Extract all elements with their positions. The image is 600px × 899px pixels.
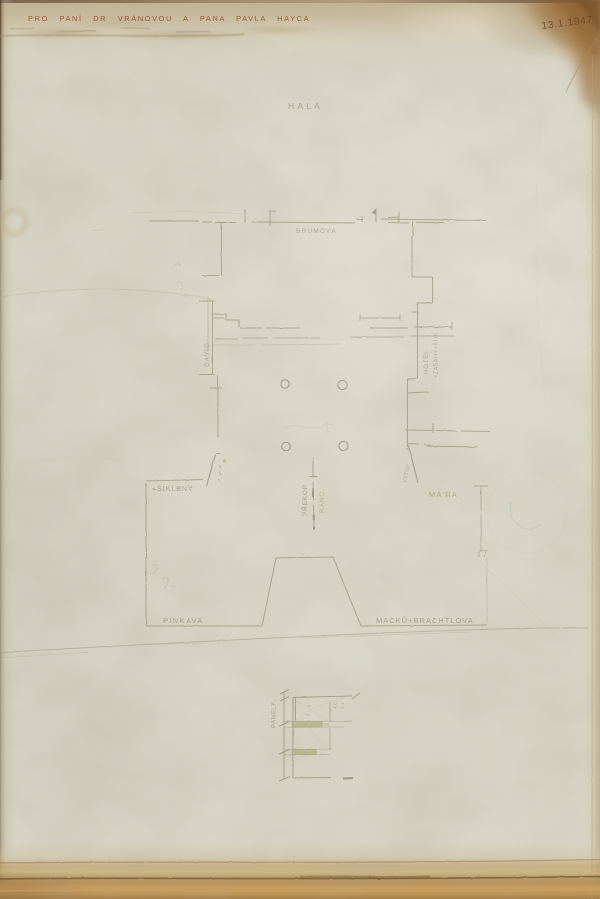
svg-text:4,0: 4,0 bbox=[333, 702, 339, 709]
svg-text:HOTEL: HOTEL bbox=[424, 349, 430, 374]
svg-text:MÁ'RA: MÁ'RA bbox=[429, 490, 458, 499]
svg-text:PRO PANÍ DR VRÁNOVOU A PANA PA: PRO PANÍ DR VRÁNOVOU A PANA PAVLA HAYCA bbox=[28, 14, 311, 23]
svg-text:PINKAVA: PINKAVA bbox=[163, 616, 204, 625]
svg-text:PŘEKOP: PŘEKOP bbox=[300, 484, 309, 516]
svg-text:PANELY: PANELY bbox=[272, 702, 278, 728]
svg-text:RÁNO: RÁNO bbox=[317, 491, 326, 513]
svg-text:MACKŮ+BRACHTLOVA: MACKŮ+BRACHTLOVA bbox=[376, 616, 474, 625]
svg-text:BRUMOVA: BRUMOVA bbox=[296, 228, 337, 235]
svg-text:DAVID: DAVID bbox=[204, 342, 211, 367]
svg-text:+ZASAHY+ŠLIK: +ZASAHY+ŠLIK bbox=[433, 332, 440, 378]
svg-text:2,1: 2,1 bbox=[340, 702, 346, 709]
svg-text:HALA: HALA bbox=[288, 101, 323, 111]
svg-text:+ŠIKLBNY: +ŠIKLBNY bbox=[152, 484, 194, 493]
